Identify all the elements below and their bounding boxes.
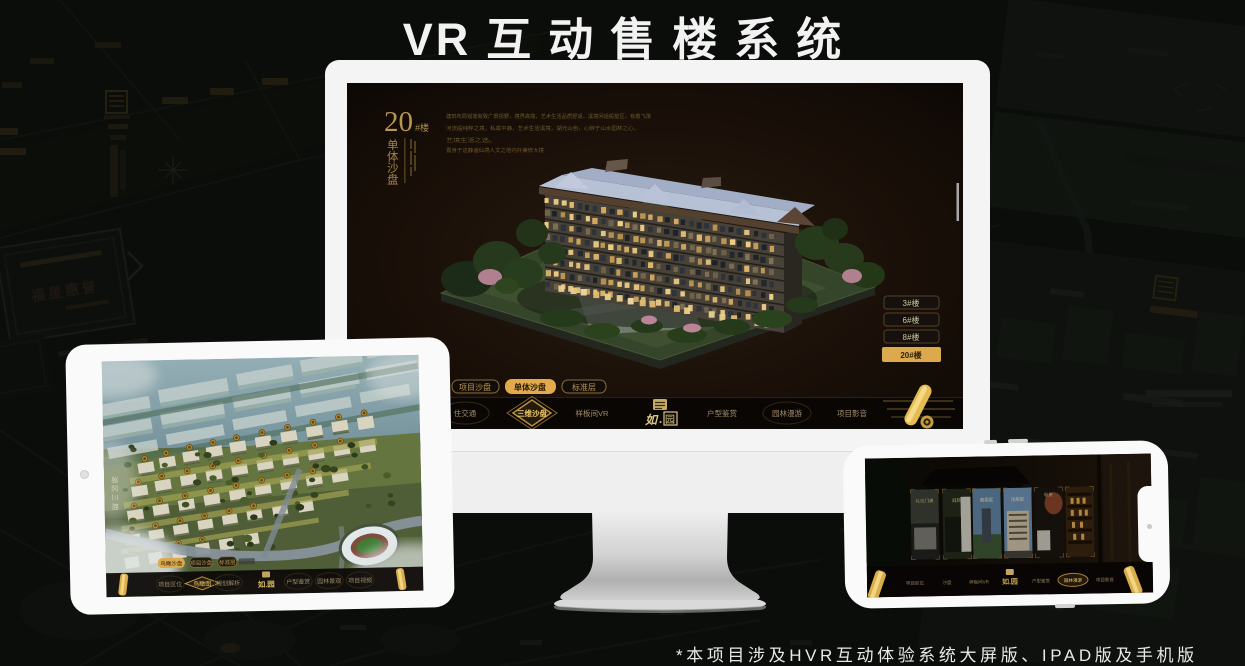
svg-text:3#楼: 3#楼 <box>903 298 920 308</box>
svg-text:8#楼: 8#楼 <box>903 332 920 342</box>
svg-text:如.园: 如.园 <box>258 579 276 589</box>
svg-text:园: 园 <box>665 414 675 426</box>
svg-text:标准层: 标准层 <box>572 382 596 392</box>
svg-text:住交通: 住交通 <box>454 408 477 418</box>
svg-text:单: 单 <box>387 139 399 152</box>
svg-text:艺境生活之选。: 艺境生活之选。 <box>446 136 496 144</box>
svg-text:户型鉴赏: 户型鉴赏 <box>707 408 737 418</box>
svg-text:建筑布局错落有致广景视野，境界高端，艺术生活品质舒适，溪境闲: 建筑布局错落有致广景视野，境界高端，艺术生活品质舒适，溪境闲适般墅区，有着飞瀑 <box>446 112 652 120</box>
svg-text:样板间VR: 样板间VR <box>576 408 610 418</box>
svg-text:沙盘: 沙盘 <box>942 579 952 585</box>
svg-text:单体沙盘: 单体沙盘 <box>514 382 546 392</box>
svg-text:体: 体 <box>387 150 399 164</box>
svg-text:20: 20 <box>384 106 413 138</box>
svg-text:#楼: #楼 <box>415 122 429 133</box>
svg-text:项目沙盘: 项目沙盘 <box>459 382 491 392</box>
svg-text:河流般纯粹之境，私属平静，艺术生活溪境，湖光山色，心醉于山水: 河流般纯粹之境，私属平静，艺术生活溪境，湖光山色，心醉于山水园林之心， <box>446 124 639 132</box>
svg-text:园林漫游: 园林漫游 <box>772 408 802 418</box>
svg-text:沙: 沙 <box>387 162 399 175</box>
svg-text:三维沙盘: 三维沙盘 <box>517 408 547 418</box>
svg-text:6#楼: 6#楼 <box>903 315 920 325</box>
svg-text:置身于这静谧仙境人文之地内外兼修大境: 置身于这静谧仙境人文之地内外兼修大境 <box>446 146 544 154</box>
svg-text:盘: 盘 <box>387 173 399 187</box>
svg-text:如: 如 <box>645 413 659 427</box>
svg-text:项目影音: 项目影音 <box>837 408 867 418</box>
svg-text:如.园: 如.园 <box>1002 577 1018 586</box>
svg-text:20#楼: 20#楼 <box>900 350 921 360</box>
